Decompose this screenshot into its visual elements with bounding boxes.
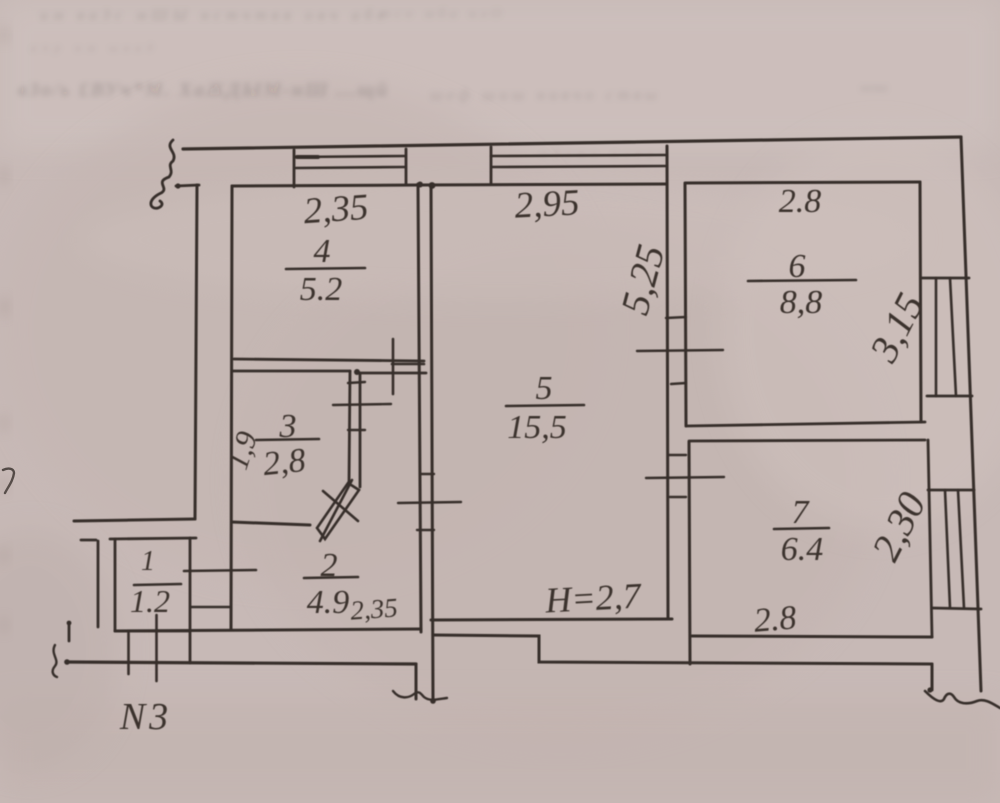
svg-text:6.4: 6.4 — [781, 531, 824, 568]
svg-text:2,35: 2,35 — [349, 592, 398, 625]
svg-text:им ваЗс мШЫ нстчтвя овч а: им ваЗс мШЫ нстчтвя овч абе — [40, 7, 390, 24]
svg-text:5: 5 — [536, 370, 553, 407]
svg-text:2,8: 2,8 — [261, 442, 307, 483]
svg-text:2.8: 2.8 — [779, 183, 822, 220]
svg-text:N3: N3 — [119, 696, 172, 738]
svg-text:4: 4 — [314, 233, 331, 270]
svg-text:нева: нева — [860, 80, 888, 96]
svg-text:15,5: 15,5 — [507, 409, 567, 446]
svg-text:тсо мба нлО: тсо мба нлО — [380, 6, 506, 22]
svg-text:5.2: 5.2 — [300, 271, 343, 308]
svg-text:H=2,7: H=2,7 — [543, 575, 643, 620]
svg-text:1.2: 1.2 — [130, 583, 170, 619]
svg-text:вЗо/ь £ВУч*М. ХаЖДЫМ-нШ ...щй: вЗо/ь £ВУч*М. ХаЖДЫМ-нШ ...щй — [18, 79, 389, 101]
svg-text:8,8: 8,8 — [780, 284, 823, 321]
svg-text:7: 7 — [792, 494, 811, 531]
svg-text:1: 1 — [141, 546, 155, 577]
svg-text:2,35: 2,35 — [302, 187, 369, 232]
svg-text:4.9: 4.9 — [307, 584, 350, 621]
svg-text:2,95: 2,95 — [514, 182, 581, 226]
svg-text:апр нм ывад: апр нм ывад — [30, 41, 158, 56]
svg-text:2.8: 2.8 — [752, 599, 798, 640]
svg-text:шеф шиш нивчо ствы: шеф шиш нивчо ствы — [430, 85, 661, 104]
